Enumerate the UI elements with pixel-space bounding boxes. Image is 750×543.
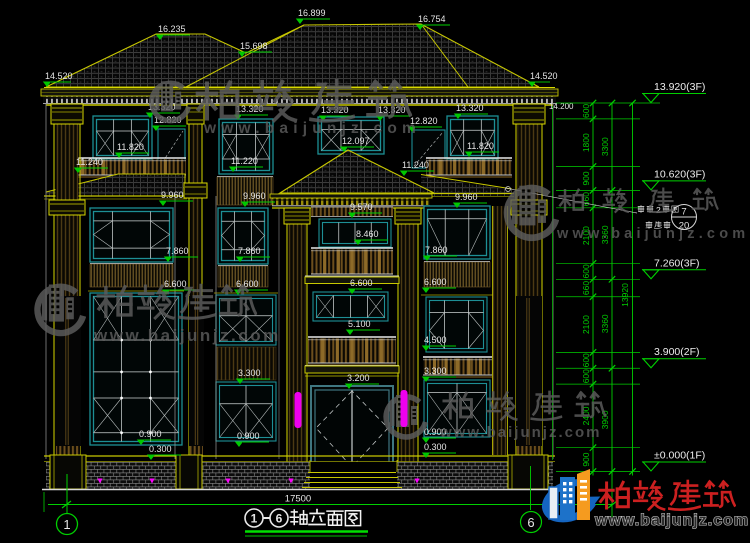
svg-text:11.220: 11.220: [231, 156, 258, 166]
svg-text:1: 1: [63, 517, 70, 532]
svg-text:0.900: 0.900: [139, 429, 162, 439]
svg-text:600: 600: [581, 353, 591, 367]
svg-text:6.600: 6.600: [424, 277, 447, 287]
svg-text:600: 600: [581, 369, 591, 383]
svg-text:600: 600: [581, 264, 591, 278]
svg-text:3.300: 3.300: [238, 368, 261, 378]
svg-text:17500: 17500: [285, 494, 311, 505]
svg-text:600: 600: [581, 104, 591, 118]
svg-text:10.620(3F): 10.620(3F): [654, 168, 705, 180]
svg-text:0.900: 0.900: [237, 431, 260, 441]
svg-text:0.300: 0.300: [424, 442, 447, 452]
svg-text:6.600: 6.600: [164, 279, 187, 289]
svg-text:11.240: 11.240: [402, 160, 429, 170]
svg-text:6: 6: [527, 515, 534, 530]
svg-text:11.820: 11.820: [467, 141, 494, 151]
svg-text:www.baijunjz.com: www.baijunjz.com: [203, 120, 421, 137]
svg-text:16.235: 16.235: [158, 24, 186, 34]
svg-text:2100: 2100: [581, 315, 591, 334]
svg-text:9.570: 9.570: [350, 202, 373, 212]
svg-text:16.899: 16.899: [298, 8, 326, 18]
svg-text:±0.000(1F): ±0.000(1F): [654, 449, 705, 461]
svg-text:1800: 1800: [581, 133, 591, 152]
svg-text:9.960: 9.960: [161, 190, 184, 200]
svg-text:4.500: 4.500: [424, 335, 447, 345]
svg-text:12.097: 12.097: [342, 136, 370, 146]
svg-text:660: 660: [581, 281, 591, 295]
svg-text:www.baijunjz.com: www.baijunjz.com: [439, 424, 601, 441]
svg-text:900: 900: [581, 452, 591, 466]
svg-text:6.600: 6.600: [236, 279, 259, 289]
svg-text:6.600: 6.600: [350, 278, 373, 288]
svg-text:15.698: 15.698: [240, 41, 268, 51]
svg-text:7.860: 7.860: [166, 246, 189, 256]
svg-text:8.460: 8.460: [356, 229, 379, 239]
svg-text:3.300: 3.300: [424, 366, 447, 376]
svg-text:www.baijunjz.com: www.baijunjz.com: [93, 326, 281, 345]
svg-text:3.200: 3.200: [347, 373, 370, 383]
svg-text:5.100: 5.100: [348, 319, 371, 329]
svg-text:www.baijunjz.com: www.baijunjz.com: [594, 512, 749, 529]
svg-text:14.520: 14.520: [530, 71, 558, 81]
svg-text:13.920(3F): 13.920(3F): [654, 81, 705, 93]
svg-text:14.520: 14.520: [45, 71, 73, 81]
svg-text:11.820: 11.820: [117, 142, 144, 152]
svg-text:3360: 3360: [600, 314, 610, 333]
svg-text:3300: 3300: [600, 137, 610, 156]
svg-text:9.960: 9.960: [243, 191, 266, 201]
svg-text:7.860: 7.860: [238, 246, 261, 256]
svg-text:16.754: 16.754: [418, 14, 446, 24]
svg-text:6: 6: [276, 512, 283, 526]
svg-text:900: 900: [581, 171, 591, 185]
svg-text:13920: 13920: [620, 283, 630, 307]
svg-text:9.960: 9.960: [455, 192, 478, 202]
svg-text:11.240: 11.240: [76, 157, 103, 167]
svg-text:3.900(2F): 3.900(2F): [654, 346, 700, 358]
svg-text:0.300: 0.300: [149, 444, 172, 454]
svg-text:2: 2: [656, 205, 661, 215]
svg-text:7: 7: [681, 207, 686, 218]
svg-text:www.baijunjz.com: www.baijunjz.com: [556, 226, 749, 242]
svg-text:1: 1: [251, 512, 258, 526]
svg-text:13.320: 13.320: [456, 103, 484, 113]
svg-text:7.260(3F): 7.260(3F): [654, 257, 700, 269]
svg-text:7.860: 7.860: [425, 245, 448, 255]
